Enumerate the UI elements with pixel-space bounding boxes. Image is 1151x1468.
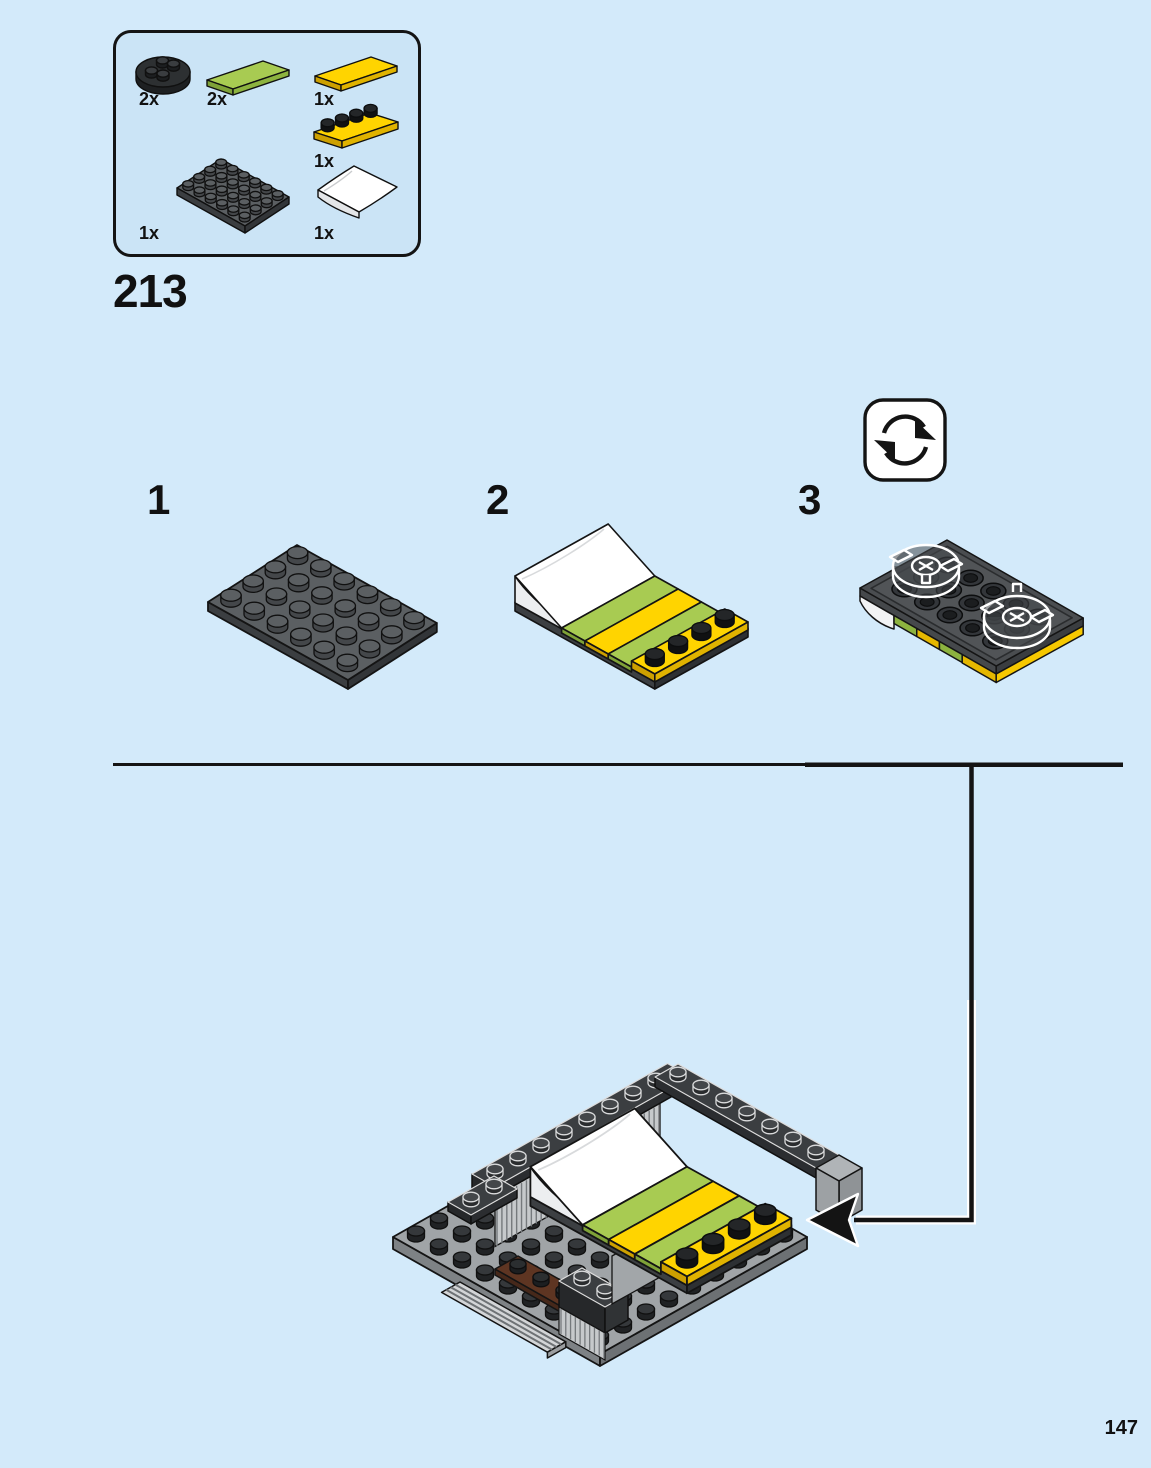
sub-step-label-2: 2 [486,476,509,524]
instruction-page: 2x 2x 1x 1 [0,0,1151,1468]
page-number: 147 [1105,1417,1138,1440]
placed-sub-assembly [530,1108,791,1293]
assembly-illustration [360,1050,1000,1450]
parts-callout-box: 2x 2x 1x 1 [113,30,421,257]
part-count-label: 2x [139,89,159,110]
step-number: 213 [113,264,187,318]
part-count-label: 1x [314,151,334,172]
callout-connector [854,764,972,1220]
part-icon-plate-dark-gray [136,155,292,243]
part-count-label: 1x [314,89,334,110]
ghost-round-plate [890,545,1053,648]
callout-arrow-icon [807,1194,858,1246]
step3-illustration [850,520,1110,710]
sub-step-label-1: 1 [147,476,170,524]
part-count-label: 1x [314,223,334,244]
step1-illustration [130,470,460,700]
masonry-ribs [495,1103,660,1247]
rotate-model-icon [862,397,948,483]
part-icon-tile-yellow [312,51,400,93]
step2-illustration [470,470,800,700]
masonry-ribs-small [559,1307,605,1360]
sub-step-label-3: 3 [798,476,821,524]
part-count-label: 1x [139,223,159,244]
part-count-label: 2x [207,89,227,110]
